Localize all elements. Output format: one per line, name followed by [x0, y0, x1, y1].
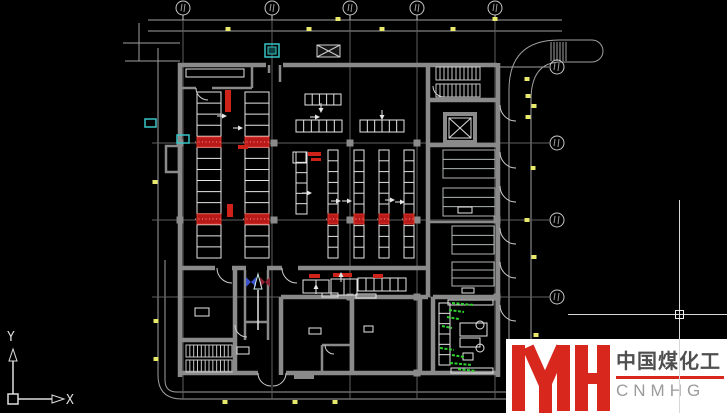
cnmhg-logo: 中国煤化工 CNMHG — [506, 339, 727, 413]
logo-chinese-text: 中国煤化工 — [616, 345, 725, 374]
crosshair-pickbox — [675, 310, 684, 319]
ucs-icon: Y X — [7, 330, 74, 408]
ucs-y-label: Y — [7, 330, 15, 345]
yh-logo-mark-icon — [506, 339, 612, 413]
logo-latin-text: CNMHG — [616, 381, 725, 401]
ucs-origin-box — [8, 394, 18, 404]
ucs-x-label: X — [66, 393, 74, 408]
cad-viewport: Y X 中国煤化工 CNMHG — [0, 0, 727, 413]
ucs-x-arrowhead — [52, 395, 64, 403]
crosshair-vertical — [679, 200, 680, 413]
crosshair-horizontal — [568, 314, 727, 315]
logo-underline — [616, 376, 724, 379]
ucs-y-arrowhead — [9, 349, 17, 361]
grid-bubbles — [176, 1, 564, 304]
